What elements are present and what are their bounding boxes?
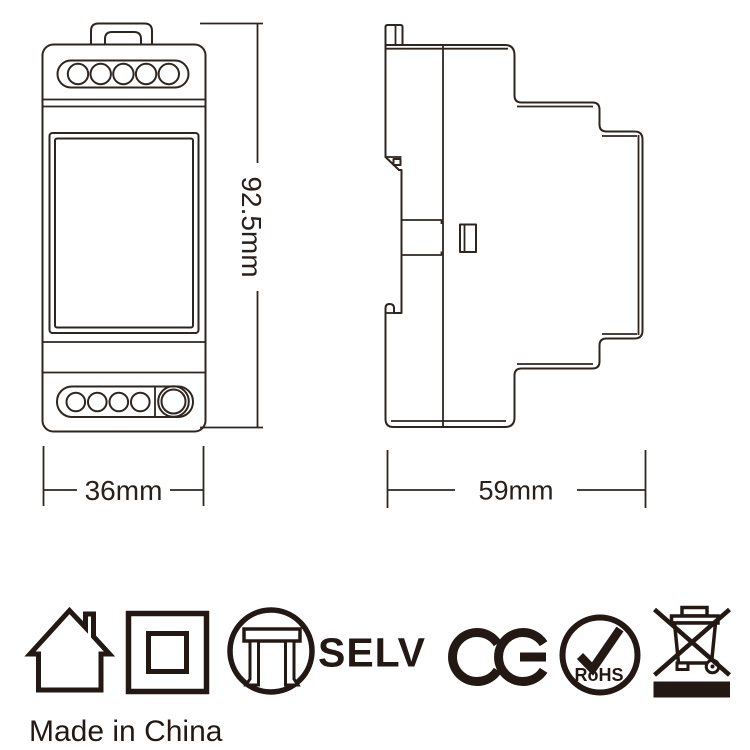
side-top-tab bbox=[386, 25, 403, 45]
ce-mark-icon: CE bbox=[453, 633, 546, 682]
side-body-outline bbox=[386, 45, 643, 427]
made-in-china-label: Made in China bbox=[29, 715, 223, 748]
height-dimension-label: 92.5mm bbox=[236, 176, 267, 277]
rohs-check-icon: RoHS bbox=[563, 618, 638, 693]
weee-bar bbox=[654, 682, 731, 698]
front-view-drawing bbox=[43, 24, 206, 432]
spec-sheet-page: 92.5mm 36mm bbox=[0, 0, 750, 750]
front-body bbox=[43, 45, 206, 432]
class-ii-double-insulation-icon bbox=[129, 614, 207, 692]
side-width-dimension: 59mm bbox=[388, 450, 646, 508]
selv-label: SELV bbox=[318, 629, 426, 675]
front-top-tab bbox=[91, 24, 152, 46]
independent-control-gear-icon bbox=[230, 610, 312, 692]
side-width-dimension-label: 59mm bbox=[478, 475, 553, 505]
certification-icons: SELV CE RoHS bbox=[30, 608, 730, 698]
indoor-use-house-icon bbox=[30, 611, 110, 691]
rohs-label: RoHS bbox=[575, 665, 624, 685]
weee-crossed-bin-icon bbox=[654, 608, 731, 698]
front-width-dimension-label: 36mm bbox=[85, 475, 163, 506]
dimension-diagram: 92.5mm 36mm bbox=[0, 0, 750, 750]
front-width-dimension: 36mm bbox=[44, 446, 204, 506]
front-height-dimension: 92.5mm bbox=[200, 24, 267, 428]
side-view-drawing bbox=[386, 25, 643, 427]
